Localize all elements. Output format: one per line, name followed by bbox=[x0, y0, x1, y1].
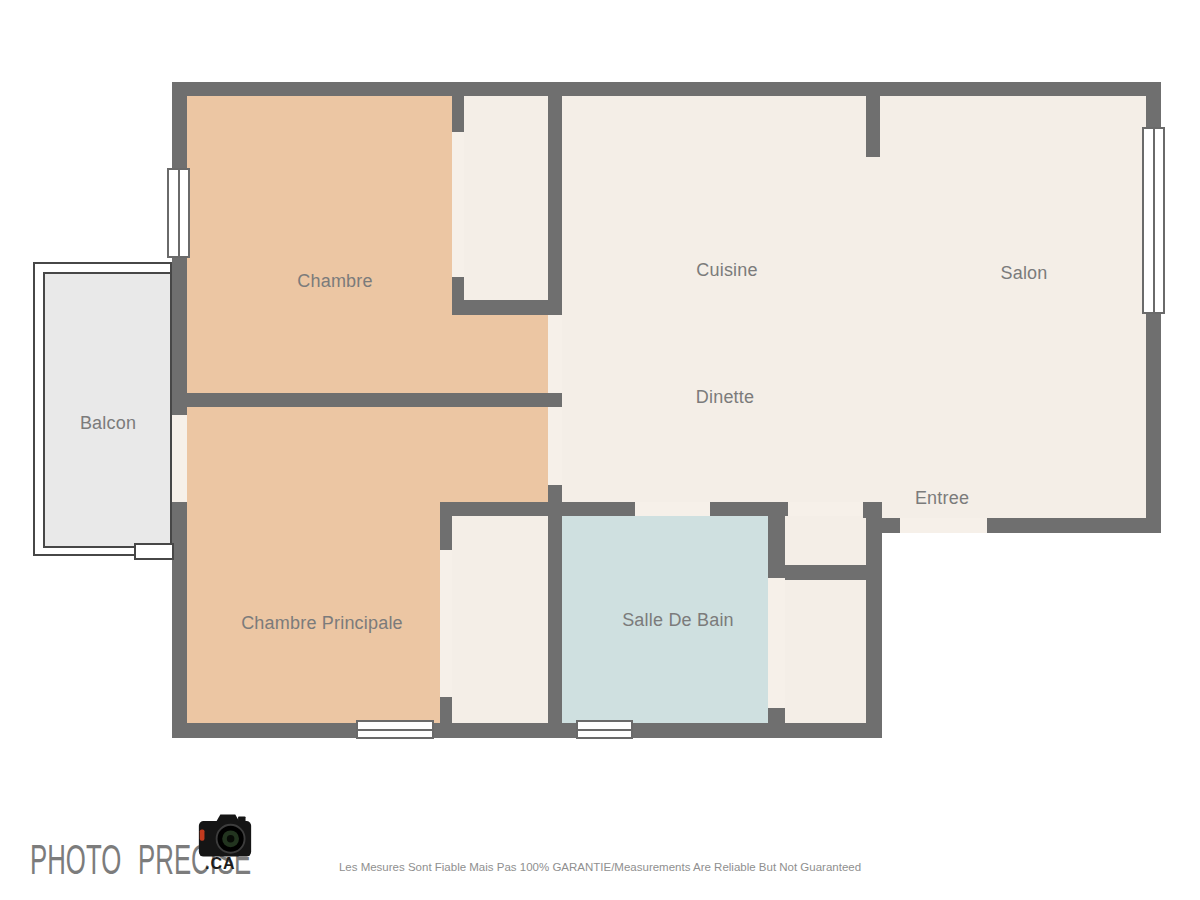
entry-closet-door-opening bbox=[788, 502, 863, 516]
wall-bath-left bbox=[548, 485, 562, 723]
bath-door-opening bbox=[635, 502, 710, 516]
bath-side-opening bbox=[768, 578, 785, 708]
room-label-chambre-principale: Chambre Principale bbox=[241, 613, 403, 634]
cp-closet-floor bbox=[440, 516, 548, 723]
wall-closet1-bottom bbox=[452, 300, 562, 315]
chambre-closet-floor bbox=[452, 96, 548, 300]
wall-bath-right-bottom bbox=[768, 708, 785, 723]
chambre-window bbox=[167, 168, 190, 258]
cp-door-opening bbox=[548, 407, 562, 485]
room-label-salle-de-bain: Salle De Bain bbox=[622, 610, 734, 631]
room-label-chambre: Chambre bbox=[297, 271, 372, 292]
balcony-threshold bbox=[134, 543, 174, 560]
wall-dinette-corner bbox=[863, 502, 882, 518]
wall-top bbox=[172, 82, 1161, 96]
bath-side-room-floor bbox=[785, 580, 866, 723]
wall-closet1-stub-bottom bbox=[452, 277, 464, 301]
chambre-door-opening bbox=[548, 315, 562, 393]
balcony-inner-rail bbox=[43, 272, 172, 548]
wall-bottom bbox=[172, 723, 882, 738]
wall-cp-closet-left-top bbox=[440, 502, 452, 550]
entree-door-opening bbox=[900, 518, 987, 533]
wall-entry-closet-divider bbox=[768, 565, 882, 580]
wall-cp-closet-top bbox=[440, 502, 548, 516]
window-mullion bbox=[578, 729, 631, 731]
camera-icon bbox=[197, 812, 253, 860]
wall-chambre-right bbox=[548, 96, 562, 315]
room-label-cuisine: Cuisine bbox=[696, 260, 757, 281]
chambre-principale-window bbox=[356, 720, 434, 739]
disclaimer-text: Les Mesures Sont Fiable Mais Pas 100% GA… bbox=[339, 861, 861, 873]
salle-de-bain-window bbox=[576, 720, 633, 739]
room-label-salon: Salon bbox=[1000, 263, 1047, 284]
wall-bedroom-divider bbox=[185, 393, 562, 407]
chambre-closet-opening bbox=[452, 132, 464, 277]
living-kitchen-floor bbox=[562, 96, 1146, 518]
wall-kitchen-salon-stub bbox=[866, 96, 880, 157]
wall-dinette-south-1 bbox=[548, 502, 635, 516]
room-label-entree: Entree bbox=[915, 488, 969, 509]
window-mullion bbox=[1153, 129, 1155, 312]
window-mullion bbox=[358, 729, 432, 731]
cp-closet-opening bbox=[440, 550, 452, 697]
wall-closet1-stub-top bbox=[452, 96, 464, 132]
entry-closet-floor bbox=[785, 516, 866, 565]
window-mullion bbox=[178, 170, 180, 256]
balcony-door-opening bbox=[172, 415, 187, 502]
room-label-dinette: Dinette bbox=[696, 387, 754, 408]
salon-window bbox=[1142, 127, 1165, 314]
room-label-balcon: Balcon bbox=[80, 413, 136, 434]
wall-mid-vertical bbox=[866, 518, 882, 738]
brand-suffix: .CA bbox=[205, 855, 236, 873]
floor-plan-canvas: Chambre Cuisine Salon Balcon Dinette Ent… bbox=[0, 0, 1200, 900]
wall-cp-closet-left-bottom bbox=[440, 697, 452, 723]
